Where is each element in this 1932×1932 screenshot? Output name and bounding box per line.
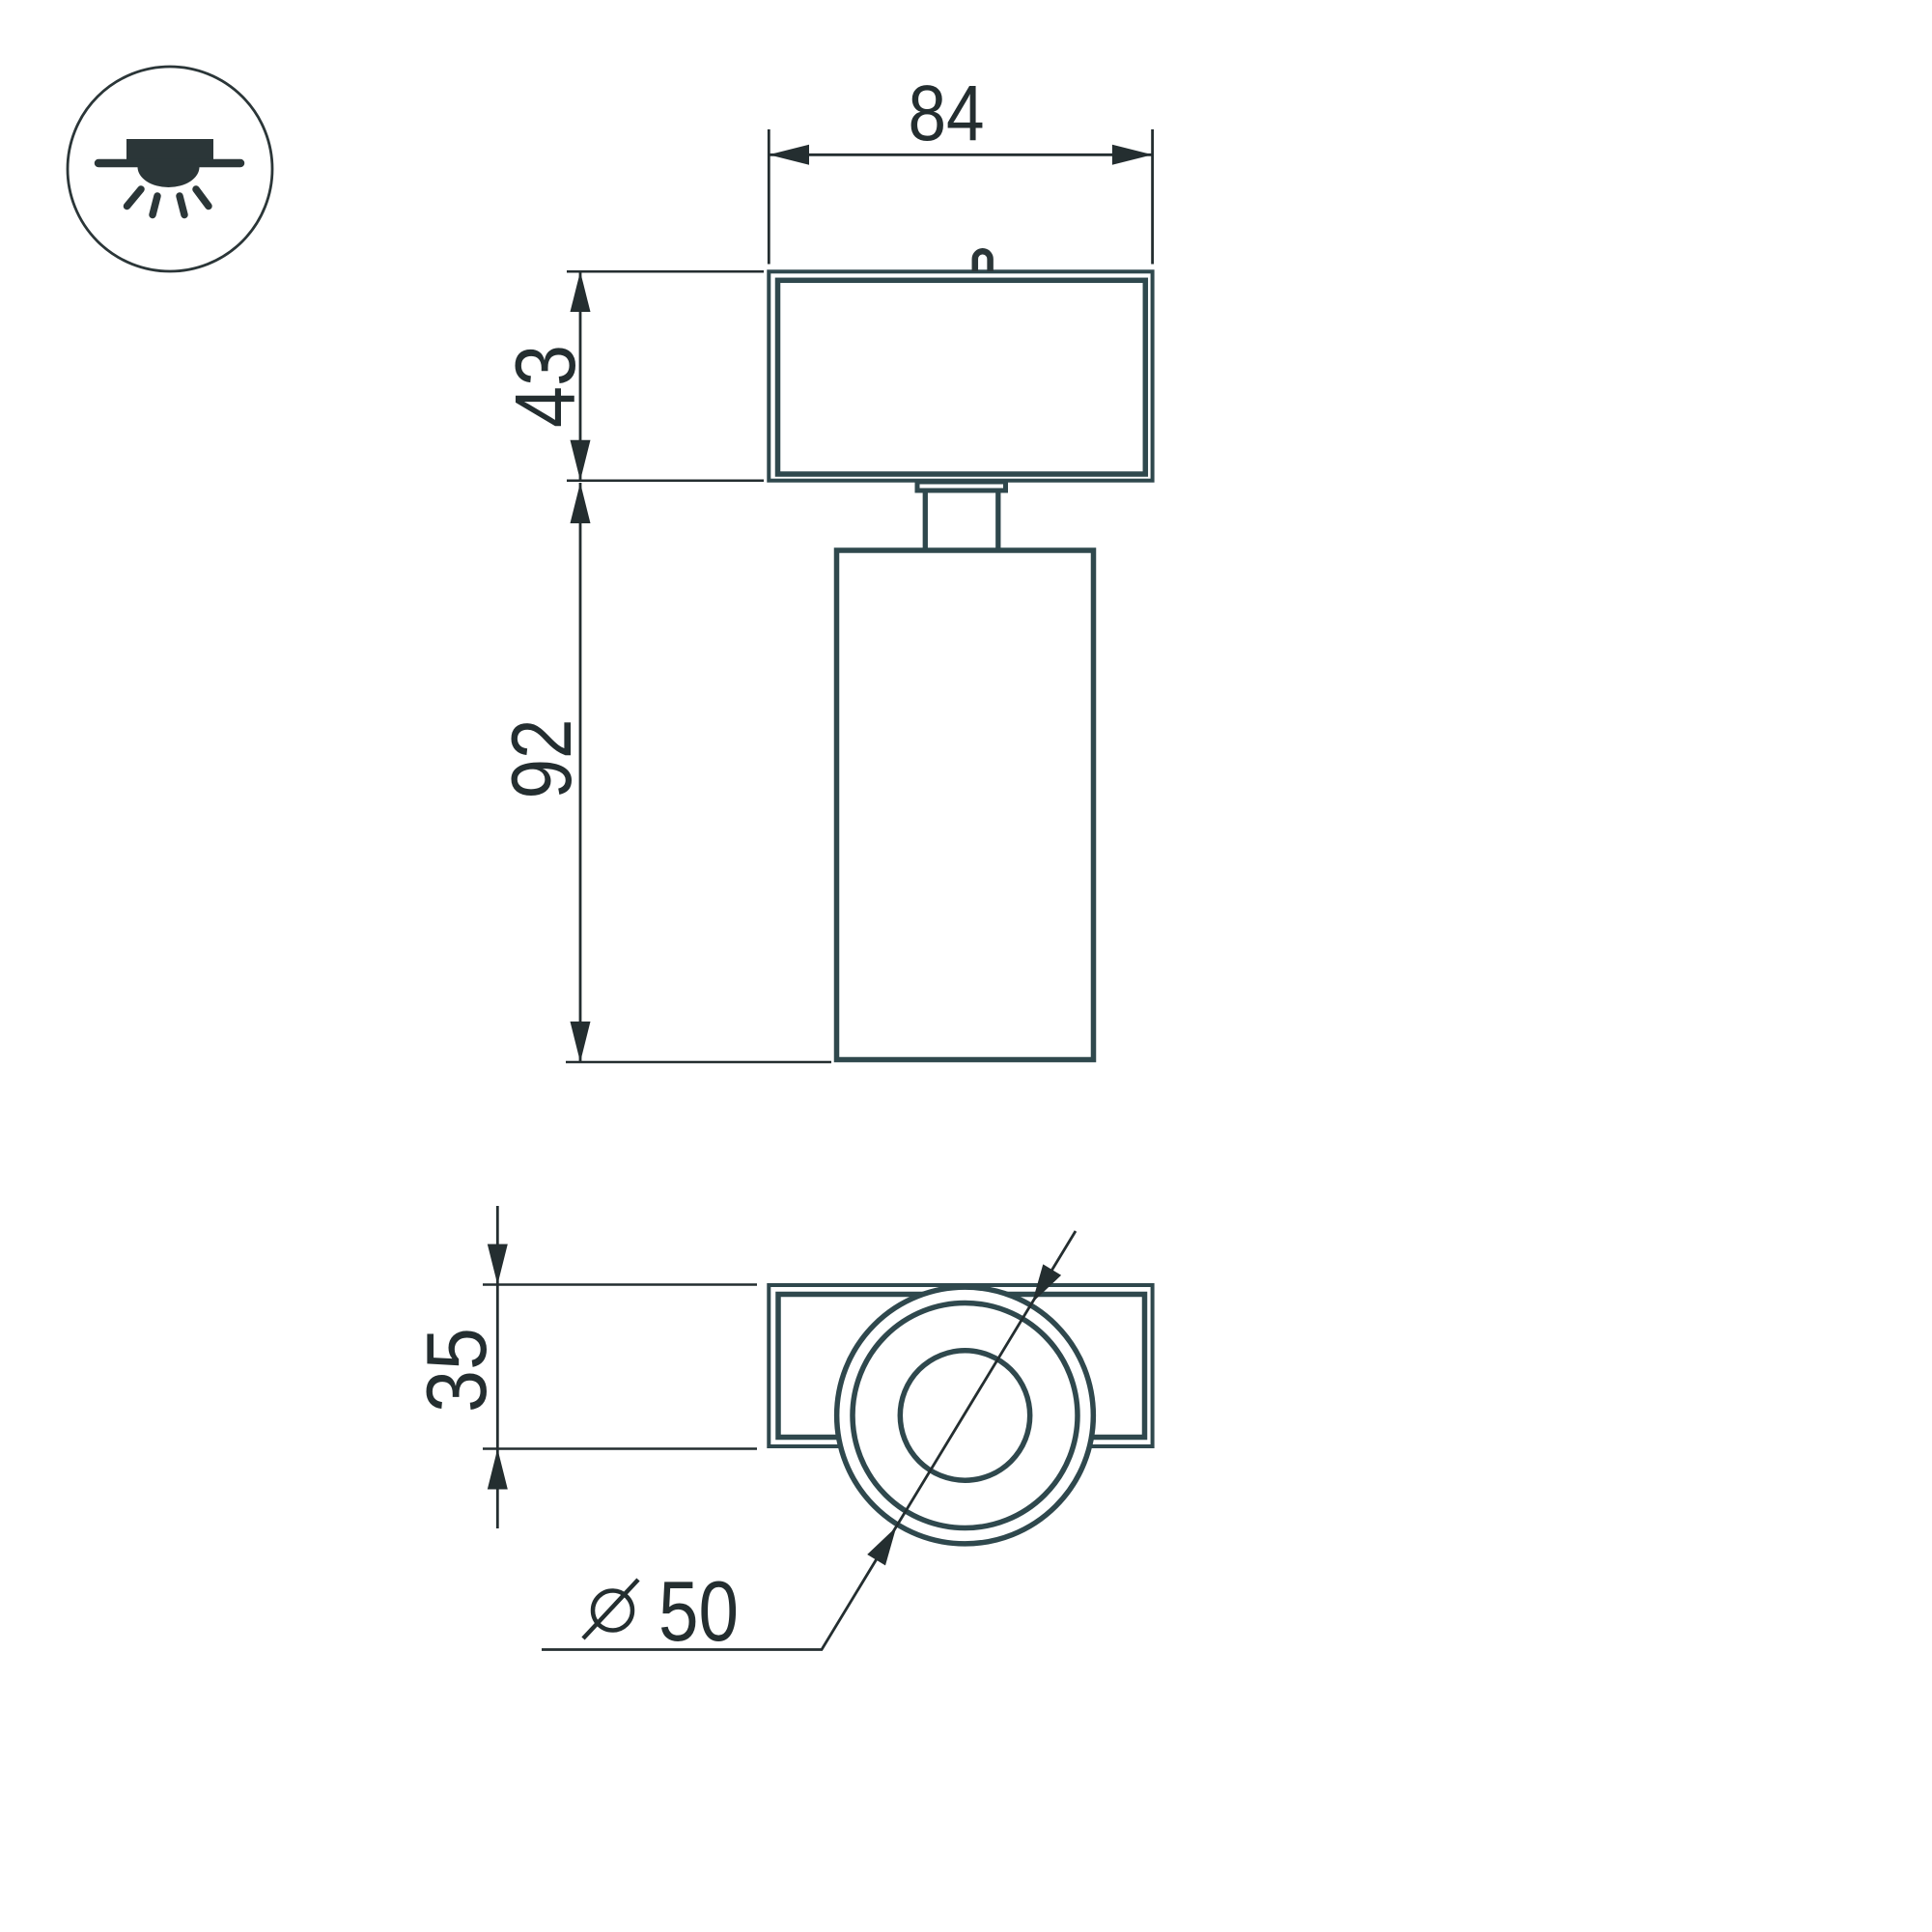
svg-text:84: 84 xyxy=(909,70,985,157)
svg-text:35: 35 xyxy=(408,1328,504,1413)
svg-text:92: 92 xyxy=(493,719,589,799)
svg-text:43: 43 xyxy=(497,345,593,428)
svg-text:50: 50 xyxy=(658,1563,739,1659)
